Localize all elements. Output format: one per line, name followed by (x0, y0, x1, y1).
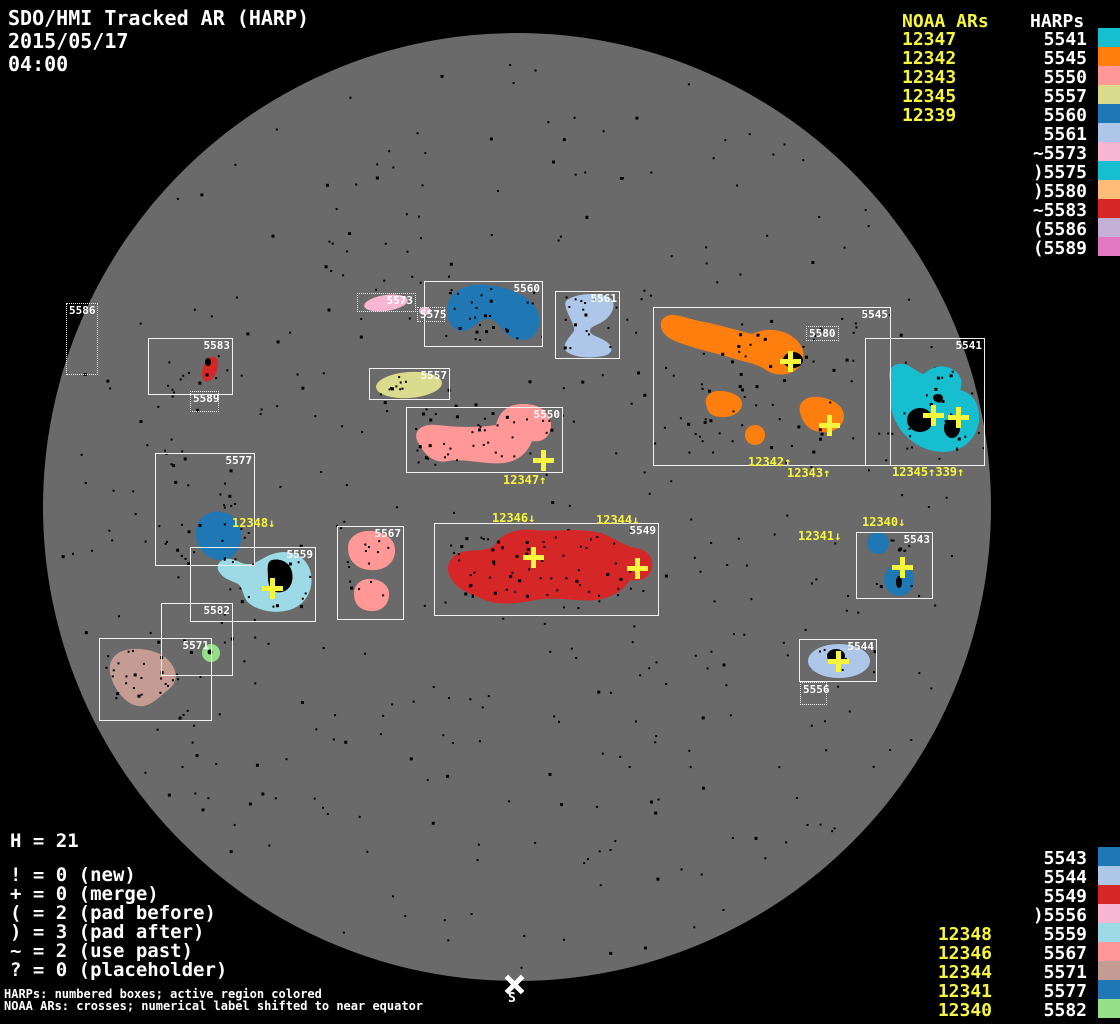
harp-box-label-5559: 5559 (287, 549, 314, 561)
harp-color-swatch-5544 (1098, 866, 1120, 885)
harp-item: 5577 (1033, 982, 1087, 1001)
harp-color-swatch-5571 (1098, 961, 1120, 980)
caption-line-2: NOAA ARs: crosses; numerical label shift… (4, 1000, 423, 1012)
harp-color-swatch-5589 (1098, 237, 1120, 256)
noaa-label-12342: 12342↑ (748, 456, 791, 469)
harp-box-label-5556: 5556 (803, 684, 830, 696)
harp-item: 5541 (1033, 30, 1087, 49)
harp-box-label-5573: 5573 (387, 295, 414, 307)
harp-box-5571: 5571 (99, 638, 212, 721)
harp-box-5583: 5583 (148, 338, 233, 395)
noaa-label-12346: 12346↓ (492, 512, 535, 525)
harp-item: 5557 (1033, 87, 1087, 106)
noaa-cross-12339 (948, 407, 969, 428)
noaa-label-12341: 12341↓ (798, 530, 841, 543)
noaa-label-12344: 12344↓ (596, 514, 639, 527)
harp-item: )5580 (1033, 182, 1087, 201)
noaa-cross-12348 (262, 578, 283, 599)
noaa-ar-item: 12343 (902, 68, 956, 87)
harp-box-label-5586: 5586 (69, 305, 96, 317)
harp-box-label-5567: 5567 (375, 528, 402, 540)
harp-item: 5567 (1033, 944, 1087, 963)
legend-line: ? = 0 (placeholder) (10, 961, 227, 980)
harp-color-swatch-5550 (1098, 66, 1120, 85)
harp-box-label-5560: 5560 (514, 283, 541, 295)
harp-box-label-5580: 5580 (809, 328, 836, 340)
harp-color-swatch-5559 (1098, 923, 1120, 942)
noaa-ar-item: 12342 (902, 49, 956, 68)
harps-list-top: 554155455550555755605561~5573)5575)5580~… (1033, 30, 1087, 258)
harp-box-label-5543: 5543 (904, 534, 931, 546)
harp-item: ~5583 (1033, 201, 1087, 220)
harp-color-swatch-5583 (1098, 199, 1120, 218)
harp-box-5589: 5589 (190, 391, 219, 412)
noaa-ar-item: 12346 (938, 944, 992, 963)
harp-item: )5556 (1033, 906, 1087, 925)
harp-box-label-5577: 5577 (226, 455, 253, 467)
harp-box-label-5541: 5541 (956, 340, 983, 352)
harp-color-swatch-5556 (1098, 904, 1120, 923)
plot-date: 2015/05/17 (8, 30, 309, 53)
status-legend: ! = 0 (new)+ = 0 (merge)( = 2 (pad befor… (10, 866, 227, 980)
harp-item: 5550 (1033, 68, 1087, 87)
harp-item: 5549 (1033, 887, 1087, 906)
harp-box-5561: 5561 (555, 291, 620, 359)
harp-color-swatch-5543 (1098, 847, 1120, 866)
noaa-label-12348: 12348↓ (232, 517, 275, 530)
noaa-ar-item: 12340 (938, 1001, 992, 1020)
noaa-ar-item: 12345 (902, 87, 956, 106)
harp-color-swatch-5549 (1098, 885, 1120, 904)
harp-box-5545: 5545 (653, 307, 891, 466)
harp-box-5580: 5580 (806, 326, 839, 341)
harp-color-swatch-5582 (1098, 999, 1120, 1018)
harp-color-swatch-5541 (1098, 28, 1120, 47)
harp-box-5541: 5541 (865, 338, 985, 466)
harp-item: 5545 (1033, 49, 1087, 68)
harp-color-swatch-5545 (1098, 47, 1120, 66)
harp-box-label-5561: 5561 (591, 293, 618, 305)
harp-box-label-5583: 5583 (204, 340, 231, 352)
harp-color-swatch-5557 (1098, 85, 1120, 104)
harp-box-label-5545: 5545 (862, 309, 889, 321)
harp-color-swatch-5575 (1098, 161, 1120, 180)
harp-box-5549: 5549 (434, 523, 659, 616)
harp-item: (5589 (1033, 239, 1087, 258)
harp-box-5560: 5560 (424, 281, 543, 347)
harp-item: ~5573 (1033, 144, 1087, 163)
noaa-label-12345339: 12345↑339↑ (892, 466, 964, 479)
caption: HARPs: numbered boxes; active region col… (4, 988, 423, 1012)
harps-list-bottom: 554355445549)555655595567557155775582 (1033, 849, 1087, 1020)
harp-item: 5560 (1033, 106, 1087, 125)
harp-item: (5586 (1033, 220, 1087, 239)
harp-color-swatch-5560 (1098, 104, 1120, 123)
harp-item: 5543 (1033, 849, 1087, 868)
harp-item: )5575 (1033, 163, 1087, 182)
noaa-label-12347: 12347↑ (503, 474, 546, 487)
title-block: SDO/HMI Tracked AR (HARP) 2015/05/17 04:… (8, 7, 309, 76)
south-label: S (508, 991, 516, 1006)
harp-item: 5582 (1033, 1001, 1087, 1020)
harp-swatches-bottom (1098, 847, 1120, 1018)
noaa-ar-item: 12347 (902, 30, 956, 49)
harp-swatches-top (1098, 28, 1120, 256)
noaa-cross-12342 (780, 351, 801, 372)
noaa-cross-12346 (523, 547, 544, 568)
harp-box-label-5582: 5582 (204, 605, 231, 617)
plot-time: 04:00 (8, 53, 309, 76)
plot-title: SDO/HMI Tracked AR (HARP) (8, 7, 309, 30)
harp-item: 5561 (1033, 125, 1087, 144)
harp-count: H = 21 (10, 830, 79, 852)
noaa-list-top: 1234712342123431234512339 (902, 30, 956, 125)
noaa-ar-item: 12339 (902, 106, 956, 125)
harp-item: 5544 (1033, 868, 1087, 887)
harp-box-label-5550: 5550 (534, 409, 561, 421)
noaa-ar-item: 12348 (938, 925, 992, 944)
harp-color-swatch-5580 (1098, 180, 1120, 199)
noaa-cross-12345 (923, 405, 944, 426)
noaa-label-12340: 12340↓ (862, 516, 905, 529)
harp-color-swatch-5573 (1098, 142, 1120, 161)
harp-box-label-5571: 5571 (183, 640, 210, 652)
noaa-cross-12341 (828, 651, 849, 672)
harp-color-swatch-5567 (1098, 942, 1120, 961)
harp-box-5567: 5567 (337, 526, 404, 620)
harp-box-5573: 5573 (357, 293, 416, 312)
harp-item: 5571 (1033, 963, 1087, 982)
harp-color-swatch-5586 (1098, 218, 1120, 237)
harp-tracking-plot: 5586558355895573557555605561555755505577… (0, 0, 1120, 1024)
noaa-ar-item: 12341 (938, 982, 992, 1001)
harp-box-label-5589: 5589 (193, 393, 220, 405)
noaa-cross-12343 (819, 415, 840, 436)
harp-box-5557: 5557 (369, 368, 450, 400)
noaa-cross-12344 (627, 558, 648, 579)
harp-box-5586: 5586 (66, 303, 98, 375)
harp-box-5556: 5556 (800, 682, 827, 705)
harp-box-label-5544: 5544 (848, 641, 875, 653)
noaa-cross-12340 (892, 557, 913, 578)
noaa-ar-item: 12344 (938, 963, 992, 982)
harp-color-swatch-5561 (1098, 123, 1120, 142)
harp-item: 5559 (1033, 925, 1087, 944)
noaa-list-bottom: 1234812346123441234112340 (938, 925, 992, 1020)
harp-box-label-5557: 5557 (421, 370, 448, 382)
noaa-cross-12347 (533, 450, 554, 471)
harp-color-swatch-5577 (1098, 980, 1120, 999)
noaa-label-12343: 12343↑ (787, 467, 830, 480)
